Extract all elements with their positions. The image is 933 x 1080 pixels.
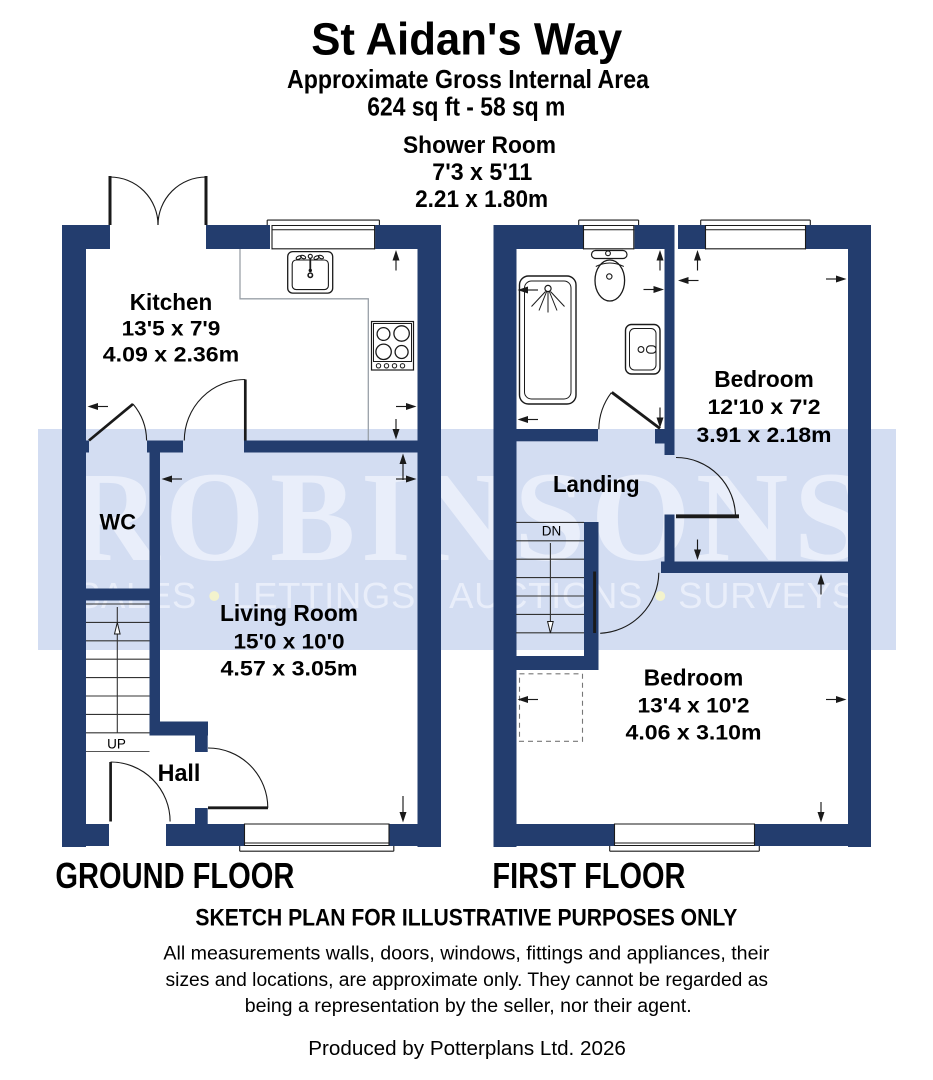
svg-text:sizes and locations, are appro: sizes and locations, are approximate onl… — [166, 969, 769, 991]
svg-text:All measurements walls, doors,: All measurements walls, doors, windows, … — [163, 943, 769, 965]
svg-text:624 sq ft - 58 sq m: 624 sq ft - 58 sq m — [367, 94, 565, 122]
svg-text:St Aidan's Way: St Aidan's Way — [311, 14, 622, 65]
svg-text:4.06 x 3.10m: 4.06 x 3.10m — [626, 721, 762, 745]
svg-text:12'10 x 7'2: 12'10 x 7'2 — [708, 395, 821, 419]
svg-text:GROUND FLOOR: GROUND FLOOR — [55, 855, 294, 896]
svg-text:13'4 x 10'2: 13'4 x 10'2 — [638, 694, 750, 718]
svg-text:Produced by Potterplans Ltd. 2: Produced by Potterplans Ltd. 2026 — [308, 1038, 626, 1060]
svg-text:DN: DN — [542, 524, 562, 539]
svg-text:FIRST FLOOR: FIRST FLOOR — [492, 855, 685, 896]
svg-text:4.09 x 2.36m: 4.09 x 2.36m — [103, 343, 240, 367]
svg-text:Living Room: Living Room — [220, 600, 358, 626]
svg-text:SKETCH PLAN FOR ILLUSTRATIVE P: SKETCH PLAN FOR ILLUSTRATIVE PURPOSES ON… — [195, 904, 737, 931]
svg-text:Bedroom: Bedroom — [644, 665, 744, 691]
svg-text:Kitchen: Kitchen — [130, 289, 213, 315]
svg-text:13'5 x 7'9: 13'5 x 7'9 — [122, 316, 221, 340]
svg-text:being a representation by the: being a representation by the seller, no… — [245, 995, 692, 1017]
svg-text:Bedroom: Bedroom — [714, 366, 814, 392]
svg-text:Shower Room: Shower Room — [403, 132, 556, 159]
svg-text:UP: UP — [107, 737, 126, 752]
svg-text:4.57 x 3.05m: 4.57 x 3.05m — [221, 657, 358, 681]
svg-text:7'3 x 5'11: 7'3 x 5'11 — [432, 159, 532, 186]
svg-text:SALES • LETTINGS • AUCTIONS •: SALES • LETTINGS • AUCTIONS • SURVEYS — [76, 575, 856, 616]
svg-text:15'0 x 10'0: 15'0 x 10'0 — [234, 629, 345, 653]
svg-text:WC: WC — [100, 510, 137, 535]
svg-text:3.91 x 2.18m: 3.91 x 2.18m — [697, 423, 832, 447]
svg-text:Hall: Hall — [158, 760, 201, 787]
svg-text:2.21 x 1.80m: 2.21 x 1.80m — [415, 186, 548, 213]
svg-text:Approximate Gross Internal Are: Approximate Gross Internal Area — [287, 64, 649, 94]
svg-text:Landing: Landing — [553, 471, 640, 497]
